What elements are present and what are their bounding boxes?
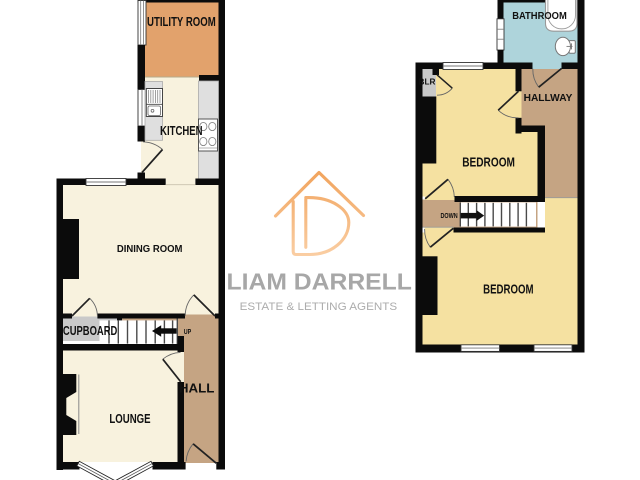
svg-text:BEDROOM: BEDROOM <box>483 283 533 297</box>
svg-text:BATHROOM: BATHROOM <box>512 11 567 22</box>
svg-text:DINING ROOM: DINING ROOM <box>117 243 183 255</box>
svg-text:BLR: BLR <box>419 77 436 87</box>
svg-text:HALL: HALL <box>179 381 215 396</box>
svg-text:UTILITY ROOM: UTILITY ROOM <box>147 14 216 29</box>
svg-text:ESTATE & LETTING AGENTS: ESTATE & LETTING AGENTS <box>240 301 398 313</box>
svg-text:HALLWAY: HALLWAY <box>524 92 573 104</box>
svg-text:LOUNGE: LOUNGE <box>109 412 150 426</box>
svg-text:CUPBOARD: CUPBOARD <box>63 323 118 338</box>
svg-text:LIAM DARRELL: LIAM DARRELL <box>227 269 412 295</box>
svg-text:DOWN: DOWN <box>441 213 458 220</box>
svg-text:BEDROOM: BEDROOM <box>462 155 515 169</box>
svg-text:KITCHEN: KITCHEN <box>160 124 203 138</box>
svg-text:UP: UP <box>184 329 192 336</box>
